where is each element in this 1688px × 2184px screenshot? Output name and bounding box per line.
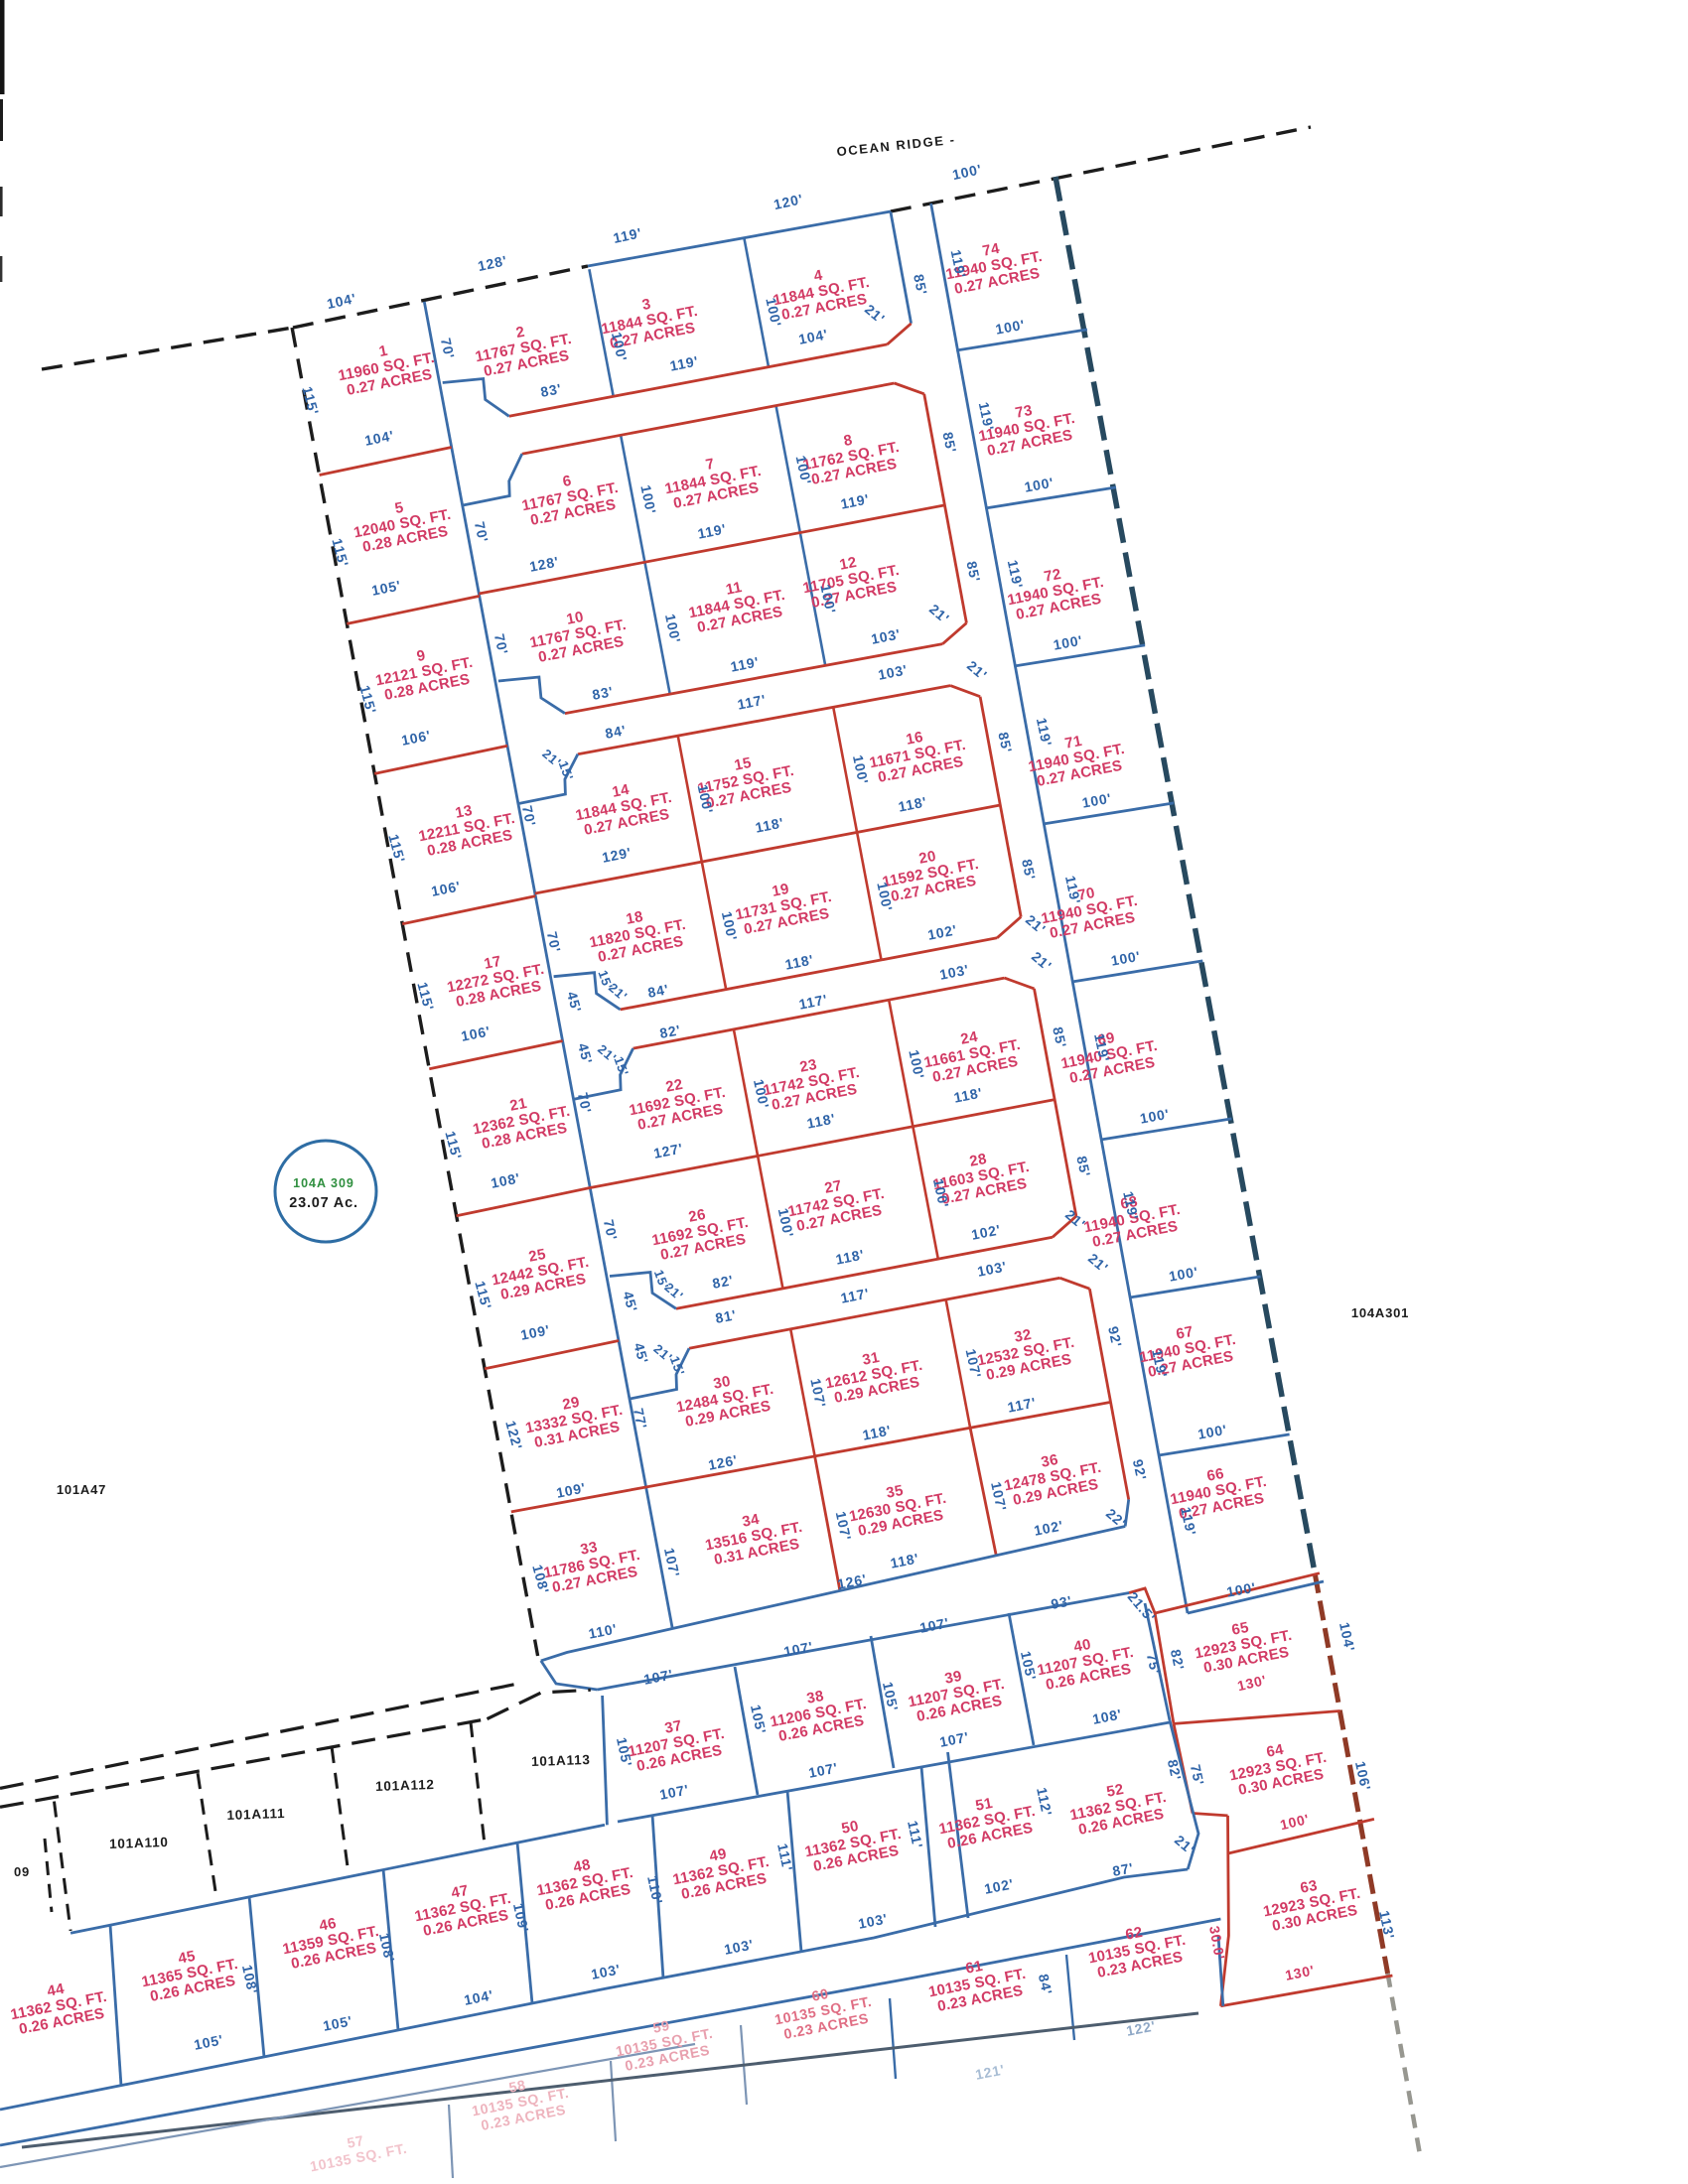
- svg-text:104A 309: 104A 309: [293, 1176, 354, 1190]
- svg-text:101A113: 101A113: [531, 1752, 591, 1769]
- svg-text:101A112: 101A112: [375, 1777, 435, 1794]
- svg-text:101A111: 101A111: [226, 1806, 285, 1823]
- svg-text:104A301: 104A301: [1351, 1305, 1409, 1320]
- svg-text:09: 09: [14, 1864, 30, 1879]
- svg-text:23.07 Ac.: 23.07 Ac.: [289, 1195, 358, 1211]
- svg-text:101A47: 101A47: [57, 1482, 106, 1497]
- svg-text:101A110: 101A110: [109, 1835, 169, 1851]
